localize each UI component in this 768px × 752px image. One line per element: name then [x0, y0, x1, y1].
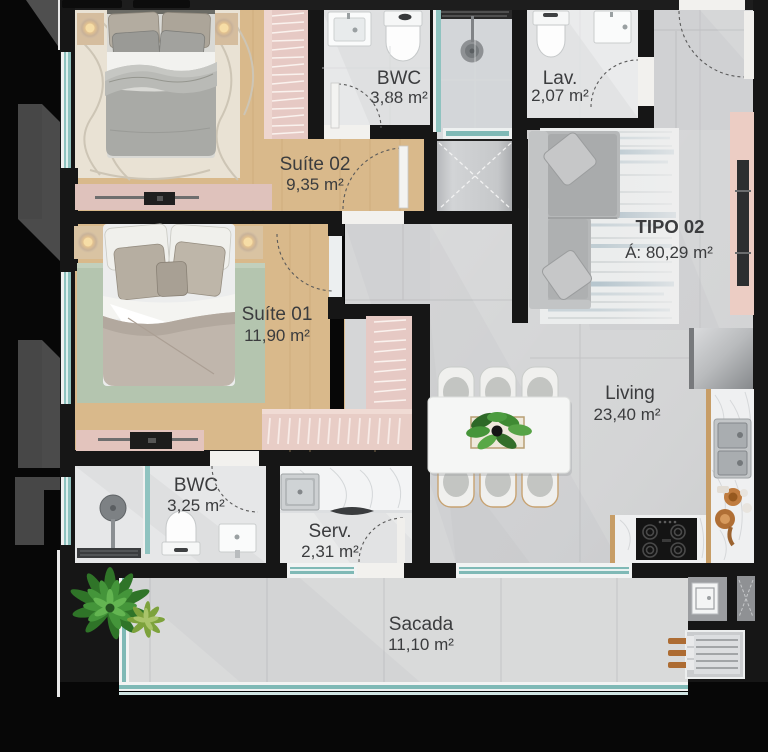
svg-text:3,25 m²: 3,25 m² [167, 496, 225, 515]
svg-text:11,10 m²: 11,10 m² [388, 635, 454, 654]
svg-text:Suíte 01: Suíte 01 [242, 304, 313, 325]
svg-text:Á: 80,29 m²: Á: 80,29 m² [625, 243, 713, 262]
svg-text:BWC: BWC [174, 475, 218, 496]
svg-text:TIPO 02: TIPO 02 [636, 216, 705, 237]
svg-text:Suíte 02: Suíte 02 [280, 154, 351, 175]
svg-text:Sacada: Sacada [389, 614, 454, 635]
svg-text:Living: Living [605, 383, 655, 404]
svg-text:3,88 m²: 3,88 m² [370, 88, 428, 107]
svg-text:BWC: BWC [377, 68, 421, 89]
svg-text:11,90 m²: 11,90 m² [244, 326, 310, 345]
svg-text:23,40 m²: 23,40 m² [593, 405, 660, 424]
svg-text:Serv.: Serv. [309, 521, 352, 542]
svg-text:2,07 m²: 2,07 m² [531, 86, 589, 105]
svg-text:2,31 m²: 2,31 m² [301, 542, 359, 561]
svg-text:9,35 m²: 9,35 m² [286, 175, 344, 194]
